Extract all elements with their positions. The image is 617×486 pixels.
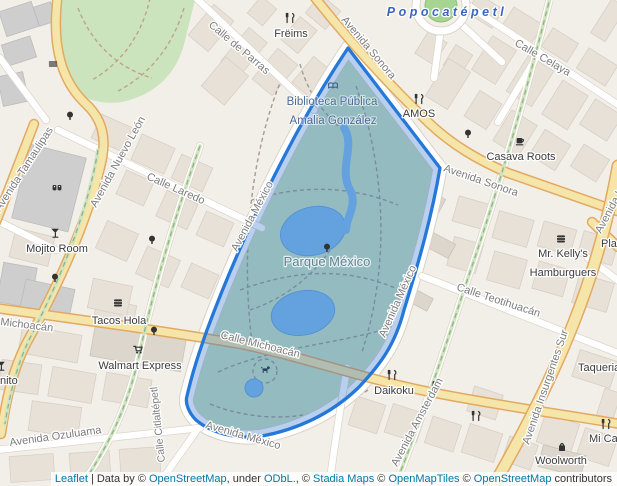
map-tiles: Popocatépetl Frëims Calle de Parras Aven… bbox=[0, 0, 617, 486]
attribution-bar: Leaflet | Data by © OpenStreetMap, under… bbox=[51, 472, 617, 486]
attribution-data-by: Data by © bbox=[97, 473, 146, 485]
poi-label-walmart-express: Walmart Express bbox=[98, 360, 182, 372]
poi-label-kellys-1: Mr. Kelly's bbox=[538, 248, 588, 260]
attribution-text: © bbox=[463, 473, 471, 485]
stadia-maps-link[interactable]: Stadia Maps bbox=[313, 473, 374, 485]
map-canvas[interactable]: Popocatépetl Frëims Calle de Parras Aven… bbox=[0, 0, 617, 486]
poi-label-nito: nito bbox=[0, 375, 18, 387]
plaza-label-popocatepetl: Popocatépetl bbox=[387, 5, 508, 19]
poi-label-mojito-room: Mojito Room bbox=[26, 243, 88, 255]
attribution-text: , under bbox=[227, 473, 261, 485]
poi-label-kellys-2: Hamburguers bbox=[530, 267, 597, 279]
odbl-link[interactable]: ODbL. bbox=[264, 473, 296, 485]
bench-icon bbox=[49, 62, 56, 66]
poi-label-amos: AMOS bbox=[403, 108, 435, 120]
poi-label-casava-roots: Casava Roots bbox=[486, 151, 556, 163]
poi-label-pla: Pla bbox=[601, 238, 617, 250]
poi-label-mi-ca: Mi Ca bbox=[589, 433, 617, 445]
poi-label-freims: Frëims bbox=[274, 28, 308, 40]
fast-food-icon bbox=[557, 235, 565, 242]
poi-label-biblioteca-1: Biblioteca Pública bbox=[287, 96, 378, 108]
attribution-text: © bbox=[377, 473, 385, 485]
poi-label-woolworth: Woolworth bbox=[535, 455, 587, 467]
attribution-text: contributors bbox=[555, 473, 612, 485]
fast-food-icon bbox=[114, 299, 122, 306]
poi-label-daikoku: Daikoku bbox=[374, 385, 414, 397]
attribution-text: , © bbox=[296, 473, 310, 485]
openstreetmap-link[interactable]: OpenStreetMap bbox=[149, 473, 227, 485]
leaflet-link[interactable]: Leaflet bbox=[55, 473, 88, 485]
park-label-parque-mexico: Parque México bbox=[284, 254, 371, 269]
openstreetmap-contributors-link[interactable]: OpenStreetMap bbox=[474, 473, 552, 485]
poi-label-taqueria: Taqueria bbox=[578, 362, 617, 374]
poi-label-tacos-hola: Tacos Hola bbox=[92, 315, 147, 327]
attribution-pipe: | bbox=[91, 473, 94, 485]
poi-label-biblioteca-2: Amalia González bbox=[290, 115, 377, 127]
openmaptiles-link[interactable]: OpenMapTiles bbox=[388, 473, 459, 485]
